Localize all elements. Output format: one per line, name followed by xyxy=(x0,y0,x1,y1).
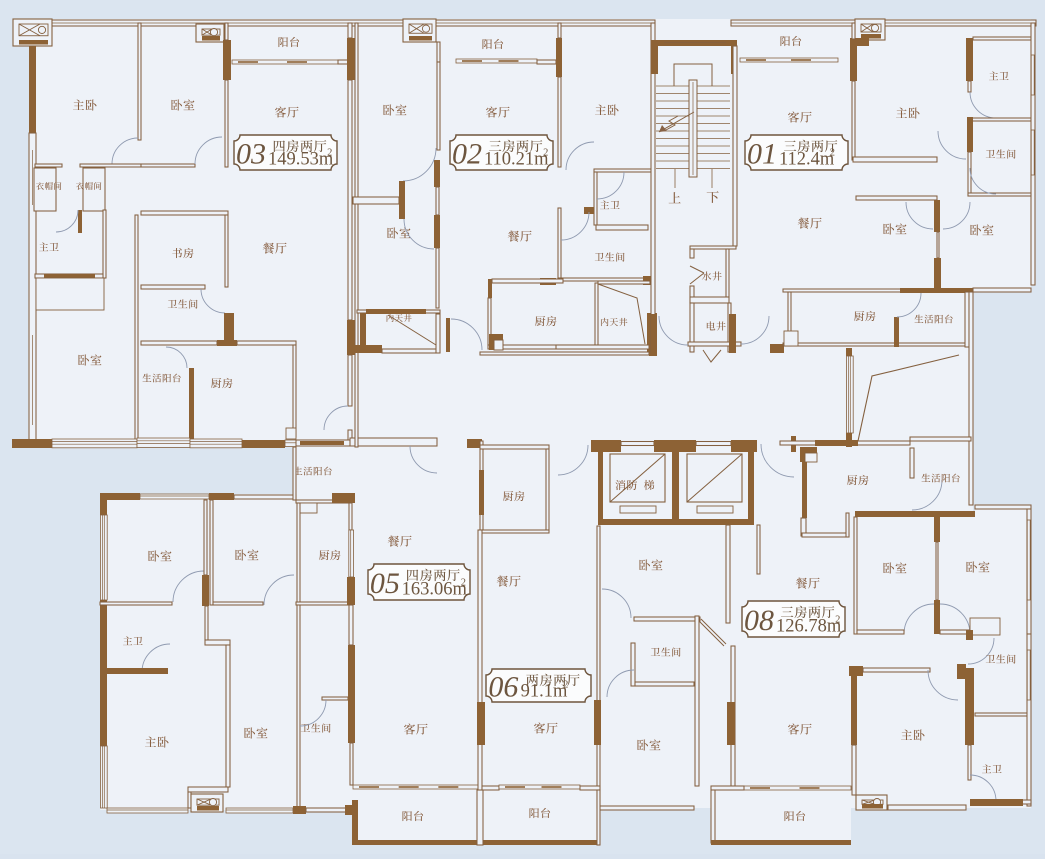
svg-text:03: 03 xyxy=(236,138,266,171)
svg-text:05: 05 xyxy=(370,567,400,600)
svg-text:91.1m: 91.1m xyxy=(521,682,568,702)
svg-text:163.06m: 163.06m xyxy=(402,580,468,600)
svg-text:06: 06 xyxy=(488,671,518,704)
svg-text:2: 2 xyxy=(461,578,466,589)
svg-text:01: 01 xyxy=(747,138,777,171)
svg-text:2: 2 xyxy=(563,680,568,691)
svg-text:2: 2 xyxy=(327,148,332,159)
svg-text:149.53m: 149.53m xyxy=(268,150,334,170)
svg-text:08: 08 xyxy=(744,604,774,637)
svg-text:2: 2 xyxy=(543,148,548,159)
svg-text:02: 02 xyxy=(452,138,482,171)
svg-text:126.78m: 126.78m xyxy=(776,617,842,637)
svg-text:2: 2 xyxy=(830,148,835,159)
svg-text:112.4m: 112.4m xyxy=(779,150,835,170)
svg-text:2: 2 xyxy=(835,615,840,626)
svg-text:110.21m: 110.21m xyxy=(484,150,549,170)
